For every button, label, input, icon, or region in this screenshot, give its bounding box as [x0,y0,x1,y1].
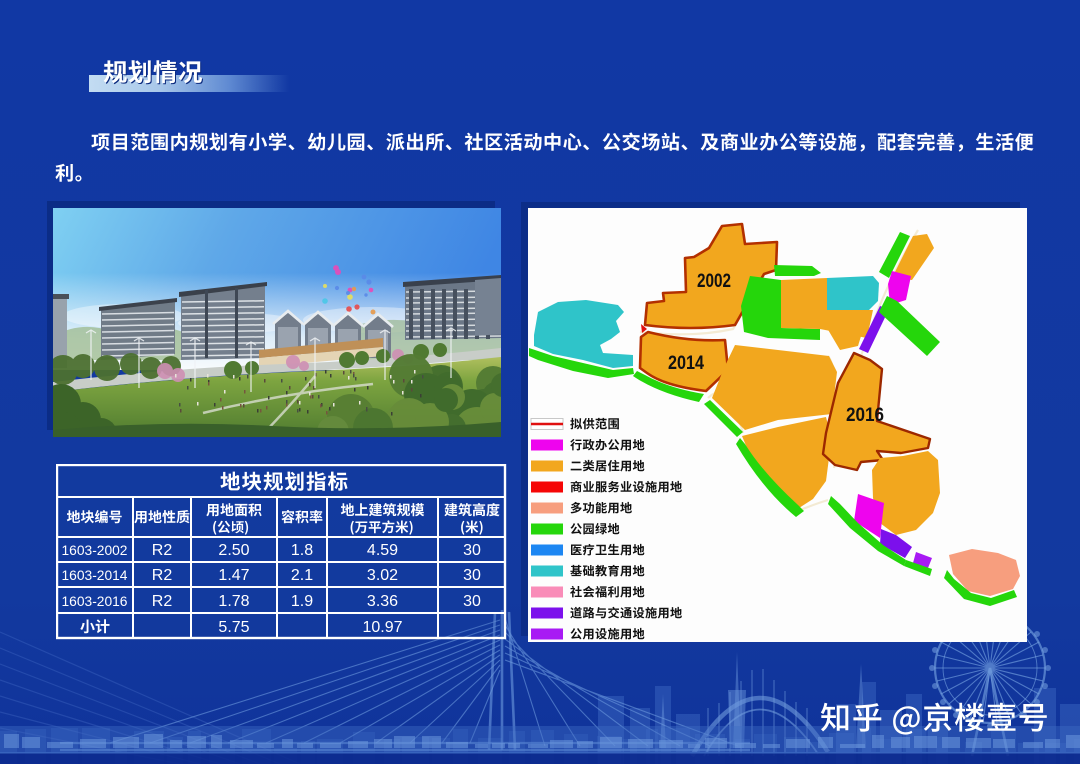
svg-text:2.1: 2.1 [291,567,313,584]
svg-text:1.8: 1.8 [291,542,313,559]
svg-text:2016: 2016 [846,404,884,426]
svg-text:3.02: 3.02 [367,567,398,584]
svg-text:4.59: 4.59 [367,542,398,559]
svg-text:1.47: 1.47 [218,567,249,584]
svg-text:30: 30 [463,593,481,610]
svg-text:2002: 2002 [697,270,731,292]
svg-text:R2: R2 [152,567,173,584]
svg-text:1603-2016: 1603-2016 [62,594,128,609]
svg-text:1.78: 1.78 [218,593,249,610]
svg-text:2.50: 2.50 [218,542,249,559]
svg-text:2014: 2014 [668,352,704,374]
svg-text:R2: R2 [152,593,173,610]
svg-text:30: 30 [463,542,481,559]
svg-text:1603-2002: 1603-2002 [62,543,128,558]
svg-text:3.36: 3.36 [367,593,398,610]
svg-text:30: 30 [463,567,481,584]
svg-text:R2: R2 [152,542,173,559]
svg-text:1603-2014: 1603-2014 [62,568,128,583]
svg-text:5.75: 5.75 [218,619,249,636]
svg-text:10.97: 10.97 [362,619,402,636]
svg-text:1.9: 1.9 [291,593,313,610]
